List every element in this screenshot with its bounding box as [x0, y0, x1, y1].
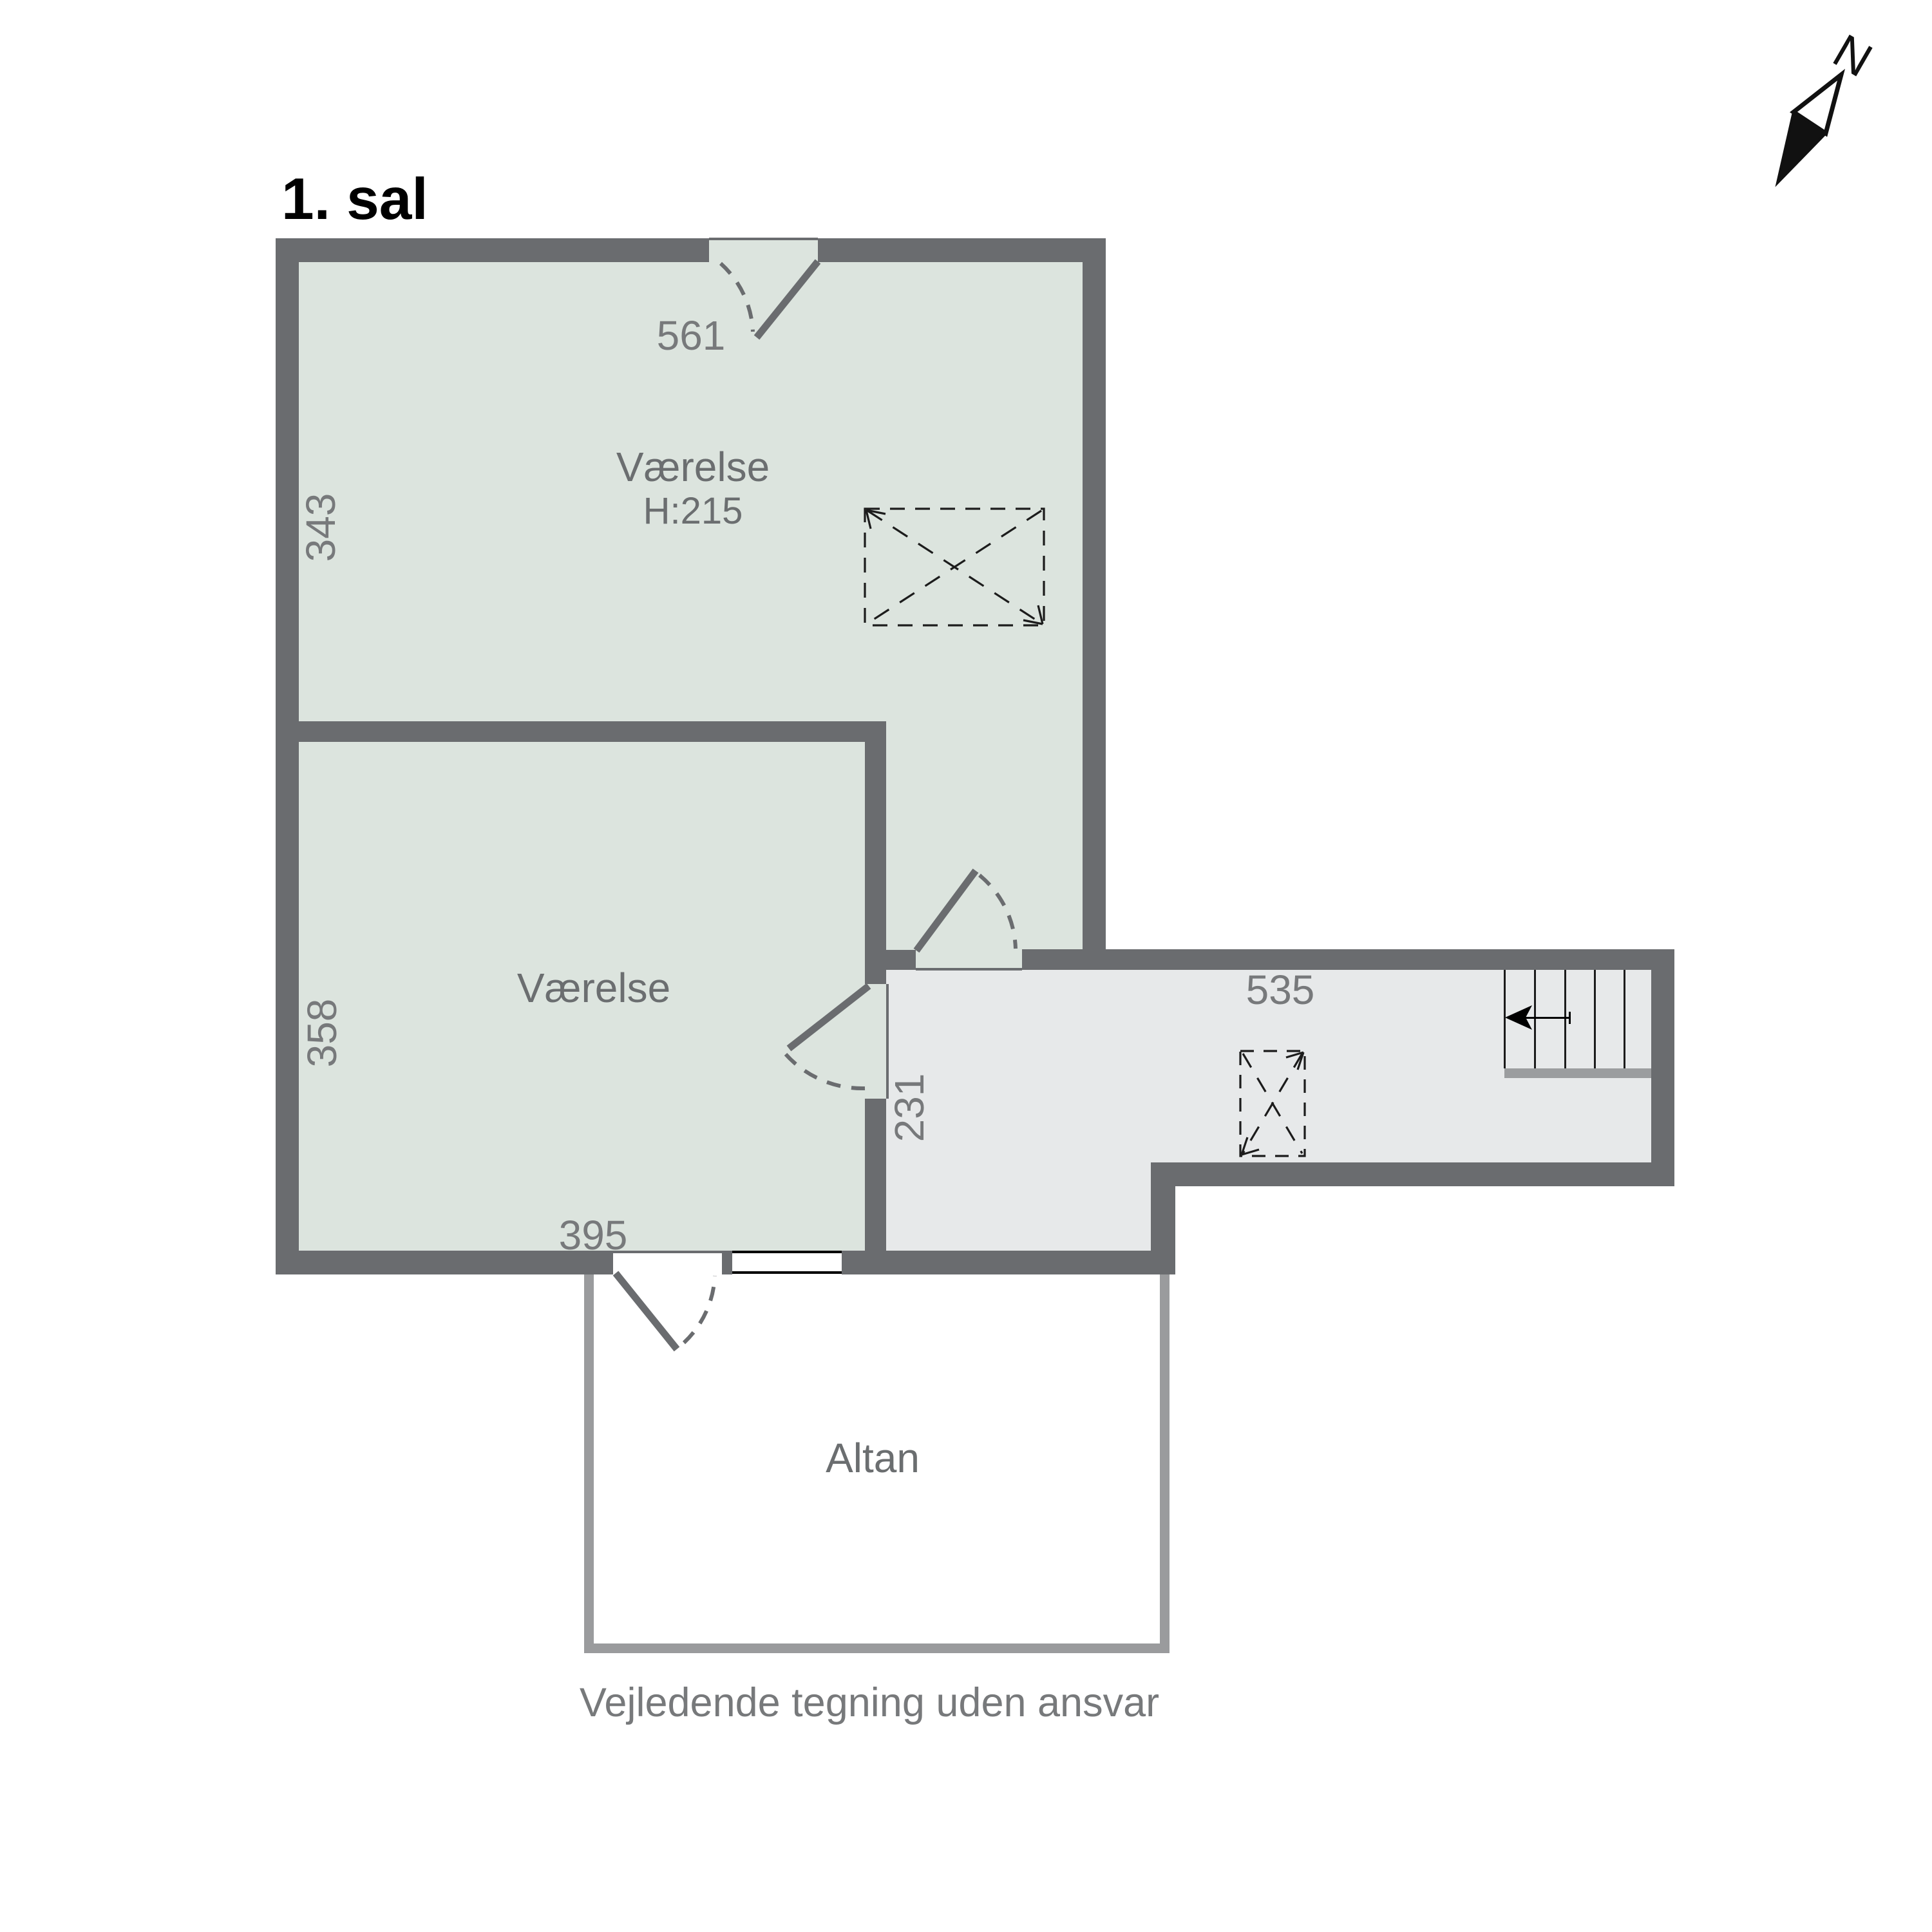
svg-text:Altan: Altan — [826, 1435, 920, 1481]
svg-text:535: 535 — [1246, 967, 1315, 1013]
svg-text:358: 358 — [299, 999, 345, 1068]
svg-text:561: 561 — [657, 312, 726, 359]
svg-text:231: 231 — [886, 1074, 933, 1142]
svg-text:395: 395 — [559, 1212, 628, 1258]
svg-text:Værelse: Værelse — [517, 965, 670, 1011]
svg-text:1. sal: 1. sal — [281, 167, 428, 232]
svg-text:Værelse: Værelse — [616, 444, 770, 490]
svg-text:343: 343 — [298, 493, 344, 562]
svg-text:H:215: H:215 — [643, 490, 743, 532]
svg-text:Vejledende tegning uden ansvar: Vejledende tegning uden ansvar — [580, 1680, 1159, 1725]
